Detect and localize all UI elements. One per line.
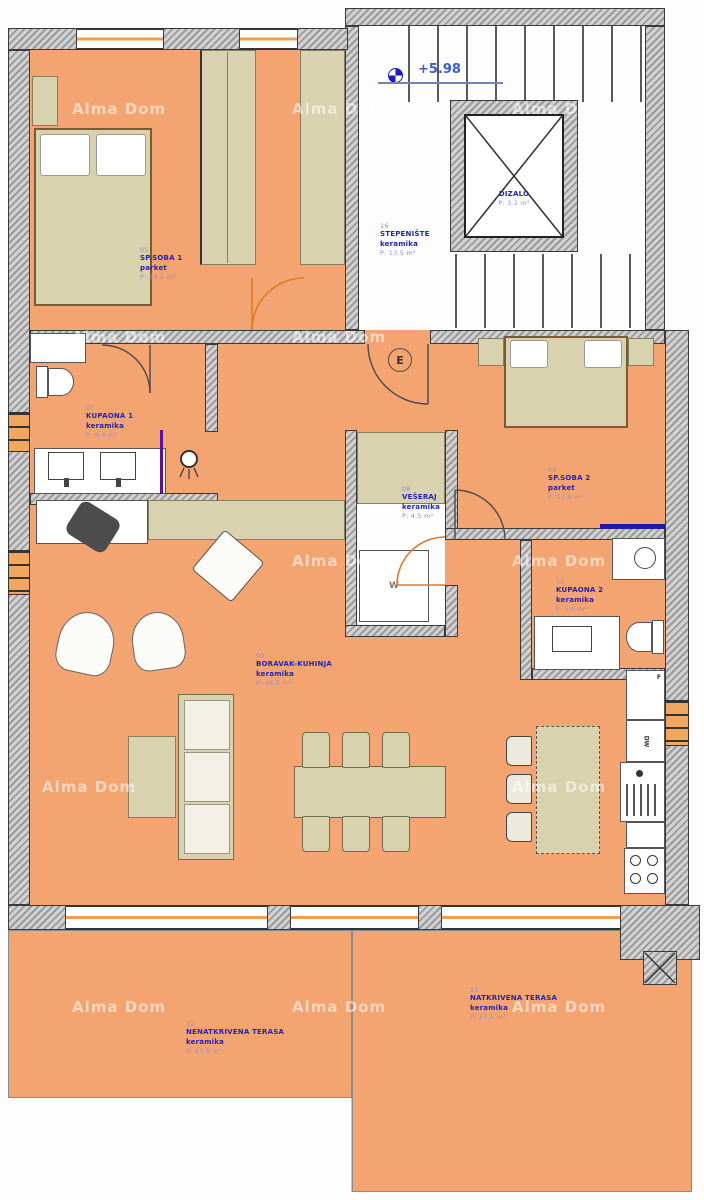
door-arc-entry	[368, 344, 428, 404]
door-arc-laundry	[397, 537, 445, 585]
door-arc-bath1	[102, 345, 150, 393]
floor-plan: DIZALO P: 3.2 m² +5.98 16 STEPENIŠTE ker…	[0, 0, 704, 1200]
annotation-overlay	[0, 0, 704, 1200]
shower-drain-legs	[180, 468, 198, 479]
elevator-x-mark	[466, 116, 562, 236]
door-arc-bedroom1	[252, 278, 304, 330]
door-arc-bedroom2	[455, 490, 505, 540]
column-x-mark	[645, 953, 675, 983]
